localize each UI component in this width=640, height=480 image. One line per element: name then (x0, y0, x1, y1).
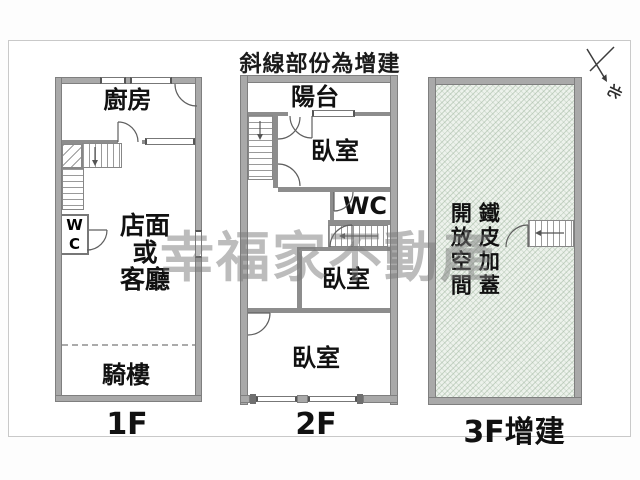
floor-label-2f: 2F (286, 407, 346, 442)
window (308, 396, 357, 402)
door-arc (278, 164, 300, 186)
room-label-bedroom: 臥室 (276, 345, 356, 372)
floor-label-3f: 3F增建 (454, 407, 574, 451)
room-label-bedroom: 臥室 (295, 138, 375, 165)
door-arc (118, 122, 138, 142)
room-label-arcade: 騎樓 (85, 362, 167, 390)
wall (240, 395, 250, 403)
stairs-winder (62, 144, 82, 168)
door-arc (290, 116, 312, 138)
window (145, 138, 195, 145)
door-arc (175, 84, 197, 106)
wall (363, 395, 398, 403)
stairs (82, 143, 122, 168)
wall (55, 77, 202, 84)
stairs (62, 168, 84, 210)
wall (55, 395, 202, 402)
window (256, 396, 297, 402)
wall (273, 115, 278, 188)
room-label-balcony: 陽台 (275, 85, 355, 111)
stairs (528, 220, 574, 247)
wall (297, 395, 308, 403)
room-label-kitchen: 廚房 (85, 87, 170, 115)
door-arc (248, 313, 270, 335)
wall (248, 308, 390, 313)
wall (574, 77, 582, 405)
watermark: 幸福家不動產 (160, 213, 496, 292)
window (312, 110, 355, 117)
stairs (248, 115, 273, 180)
wall (428, 77, 582, 85)
plan-title: 斜線部份為增建 (228, 46, 412, 78)
wall (355, 112, 390, 116)
door-arc (278, 117, 300, 139)
wall (428, 397, 582, 405)
north-arrow-shaft (587, 49, 604, 77)
window (100, 77, 126, 84)
wc-room: WC (62, 214, 89, 255)
wall (55, 77, 62, 402)
wall (240, 75, 398, 83)
north-label: 北 (604, 81, 624, 100)
north-arrow-icon: 北 (581, 44, 633, 104)
floor-label-1f: 1F (97, 407, 157, 442)
floorplan-canvas: 斜線部份為增建 WC 廚房 店面 或 客廳 騎樓 (0, 0, 640, 480)
room-label-wc: WC (66, 216, 84, 254)
window (130, 77, 172, 84)
